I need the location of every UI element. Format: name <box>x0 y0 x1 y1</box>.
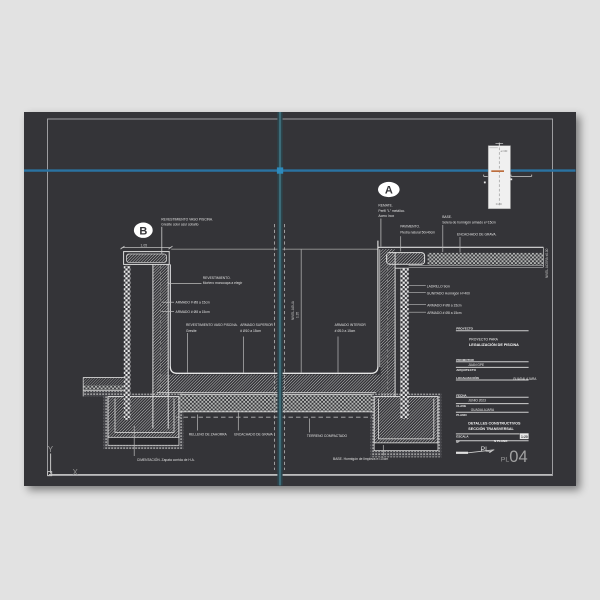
svg-text:Y: Y <box>48 445 54 454</box>
svg-text:BASE.: BASE. <box>442 215 452 219</box>
svg-text:CLAVE: CLAVE <box>456 404 466 408</box>
svg-text:SECCIÓN TRANSVERSAL: SECCIÓN TRANSVERSAL <box>468 426 514 431</box>
svg-text:Solera de hormigón armado e=15: Solera de hormigón armado e=15cm <box>442 221 496 225</box>
svg-text:A: A <box>385 185 393 197</box>
svg-text:Gresite color azul cobalto: Gresite color azul cobalto <box>161 223 198 227</box>
svg-text:N PLANO: N PLANO <box>494 439 508 443</box>
svg-text:ARQUITECTO: ARQUITECTO <box>456 368 476 372</box>
svg-text:PAVIMENTO.: PAVIMENTO. <box>400 225 420 229</box>
svg-text:Acero Inox: Acero Inox <box>378 214 394 218</box>
svg-text:TERRENO COMPACTADO: TERRENO COMPACTADO <box>307 434 348 438</box>
svg-text:PLANO: PLANO <box>456 413 467 417</box>
svg-text:Mortero monocapa a elegir: Mortero monocapa a elegir <box>203 281 243 285</box>
svg-text:ARMADO SUPERIOR: ARMADO SUPERIOR <box>240 323 273 327</box>
svg-text:PL: PL <box>501 456 510 463</box>
svg-text:REVESTIMIENTO.: REVESTIMIENTO. <box>203 276 231 280</box>
svg-text:BASE. Hormigón de limpieza e=1: BASE. Hormigón de limpieza e=10cm <box>333 457 389 461</box>
svg-text:PROYECTO PARA: PROYECTO PARA <box>469 337 499 341</box>
svg-text:CIMENTACIÓN. Zapata corrida de: CIMENTACIÓN. Zapata corrida de H.A. <box>137 457 195 462</box>
svg-text:ARMADO INTERIOR: ARMADO INTERIOR <box>335 323 367 327</box>
svg-text:LADRILLO 9cm: LADRILLO 9cm <box>427 284 450 288</box>
svg-text:1.35: 1.35 <box>296 312 300 318</box>
svg-text:JUAN GPE: JUAN GPE <box>468 363 484 367</box>
svg-text:JUNIO 2023: JUNIO 2023 <box>468 399 486 403</box>
svg-text:X: X <box>73 468 79 477</box>
svg-text:NIVEL AGUA: NIVEL AGUA <box>291 300 295 320</box>
svg-text:04: 04 <box>509 448 527 466</box>
svg-text:ENCACHADO DE GRAVA: ENCACHADO DE GRAVA <box>234 433 273 437</box>
svg-text:ARMADO # Ø8 a 15cm: ARMADO # Ø8 a 15cm <box>176 301 211 305</box>
svg-text:ARMADO # Ø8 a 15cm: ARMADO # Ø8 a 15cm <box>427 304 462 308</box>
svg-text:1:20: 1:20 <box>521 435 528 439</box>
svg-text:GUADALAJARA: GUADALAJARA <box>471 408 495 412</box>
svg-text:Piedra natural 50x40cm: Piedra natural 50x40cm <box>400 231 435 235</box>
svg-text:GUNITADO Hormigón H=400: GUNITADO Hormigón H=400 <box>427 292 470 296</box>
svg-text:Gresite: Gresite <box>186 329 197 333</box>
svg-text:LOCALIZACIÓN: LOCALIZACIÓN <box>456 375 479 380</box>
svg-text:# Ø10 a 15cm: # Ø10 a 15cm <box>240 329 261 333</box>
svg-text:REMATE.: REMATE. <box>378 203 392 207</box>
svg-text:B: B <box>139 225 147 237</box>
svg-text:REVESTIMIENTO VASO PISCINA.: REVESTIMIENTO VASO PISCINA. <box>186 323 238 327</box>
svg-text:PL: PL <box>481 447 490 454</box>
svg-text:ARMADO # Ø8 a 15cm: ARMADO # Ø8 a 15cm <box>176 310 211 314</box>
svg-text:# Ø10 a 15cm: # Ø10 a 15cm <box>335 329 356 333</box>
svg-text:PROMOTOR: PROMOTOR <box>456 358 474 362</box>
svg-text:LEGALIZACIÓN DE PISCINA: LEGALIZACIÓN DE PISCINA <box>469 342 519 347</box>
svg-text:PROYECTO: PROYECTO <box>456 327 473 331</box>
svg-text:DETALLES CONSTRUCTIVOS: DETALLES CONSTRUCTIVOS <box>468 421 521 425</box>
svg-text:ENCACHADO DE GRAVA.: ENCACHADO DE GRAVA. <box>457 233 497 237</box>
svg-text:0.20: 0.20 <box>496 202 502 206</box>
svg-text:FECHA: FECHA <box>456 393 467 397</box>
svg-text:e=30: e=30 <box>501 149 508 153</box>
svg-text:RELLENO DE ZAHORRA: RELLENO DE ZAHORRA <box>189 433 228 437</box>
svg-text:ARMADO # Ø8 a 15cm: ARMADO # Ø8 a 15cm <box>427 311 462 315</box>
svg-text:Perfil "L" metálico.: Perfil "L" metálico. <box>378 209 405 213</box>
svg-text:REVESTIMIENTO VASO PISCINA.: REVESTIMIENTO VASO PISCINA. <box>161 217 213 221</box>
svg-text:1.05: 1.05 <box>141 243 148 247</box>
svg-text:GUADALAJARA: GUADALAJARA <box>513 377 537 381</box>
svg-text:NIVEL ACERA ±0.00: NIVEL ACERA ±0.00 <box>545 248 549 278</box>
svg-text:ESCALA: ESCALA <box>456 434 469 438</box>
